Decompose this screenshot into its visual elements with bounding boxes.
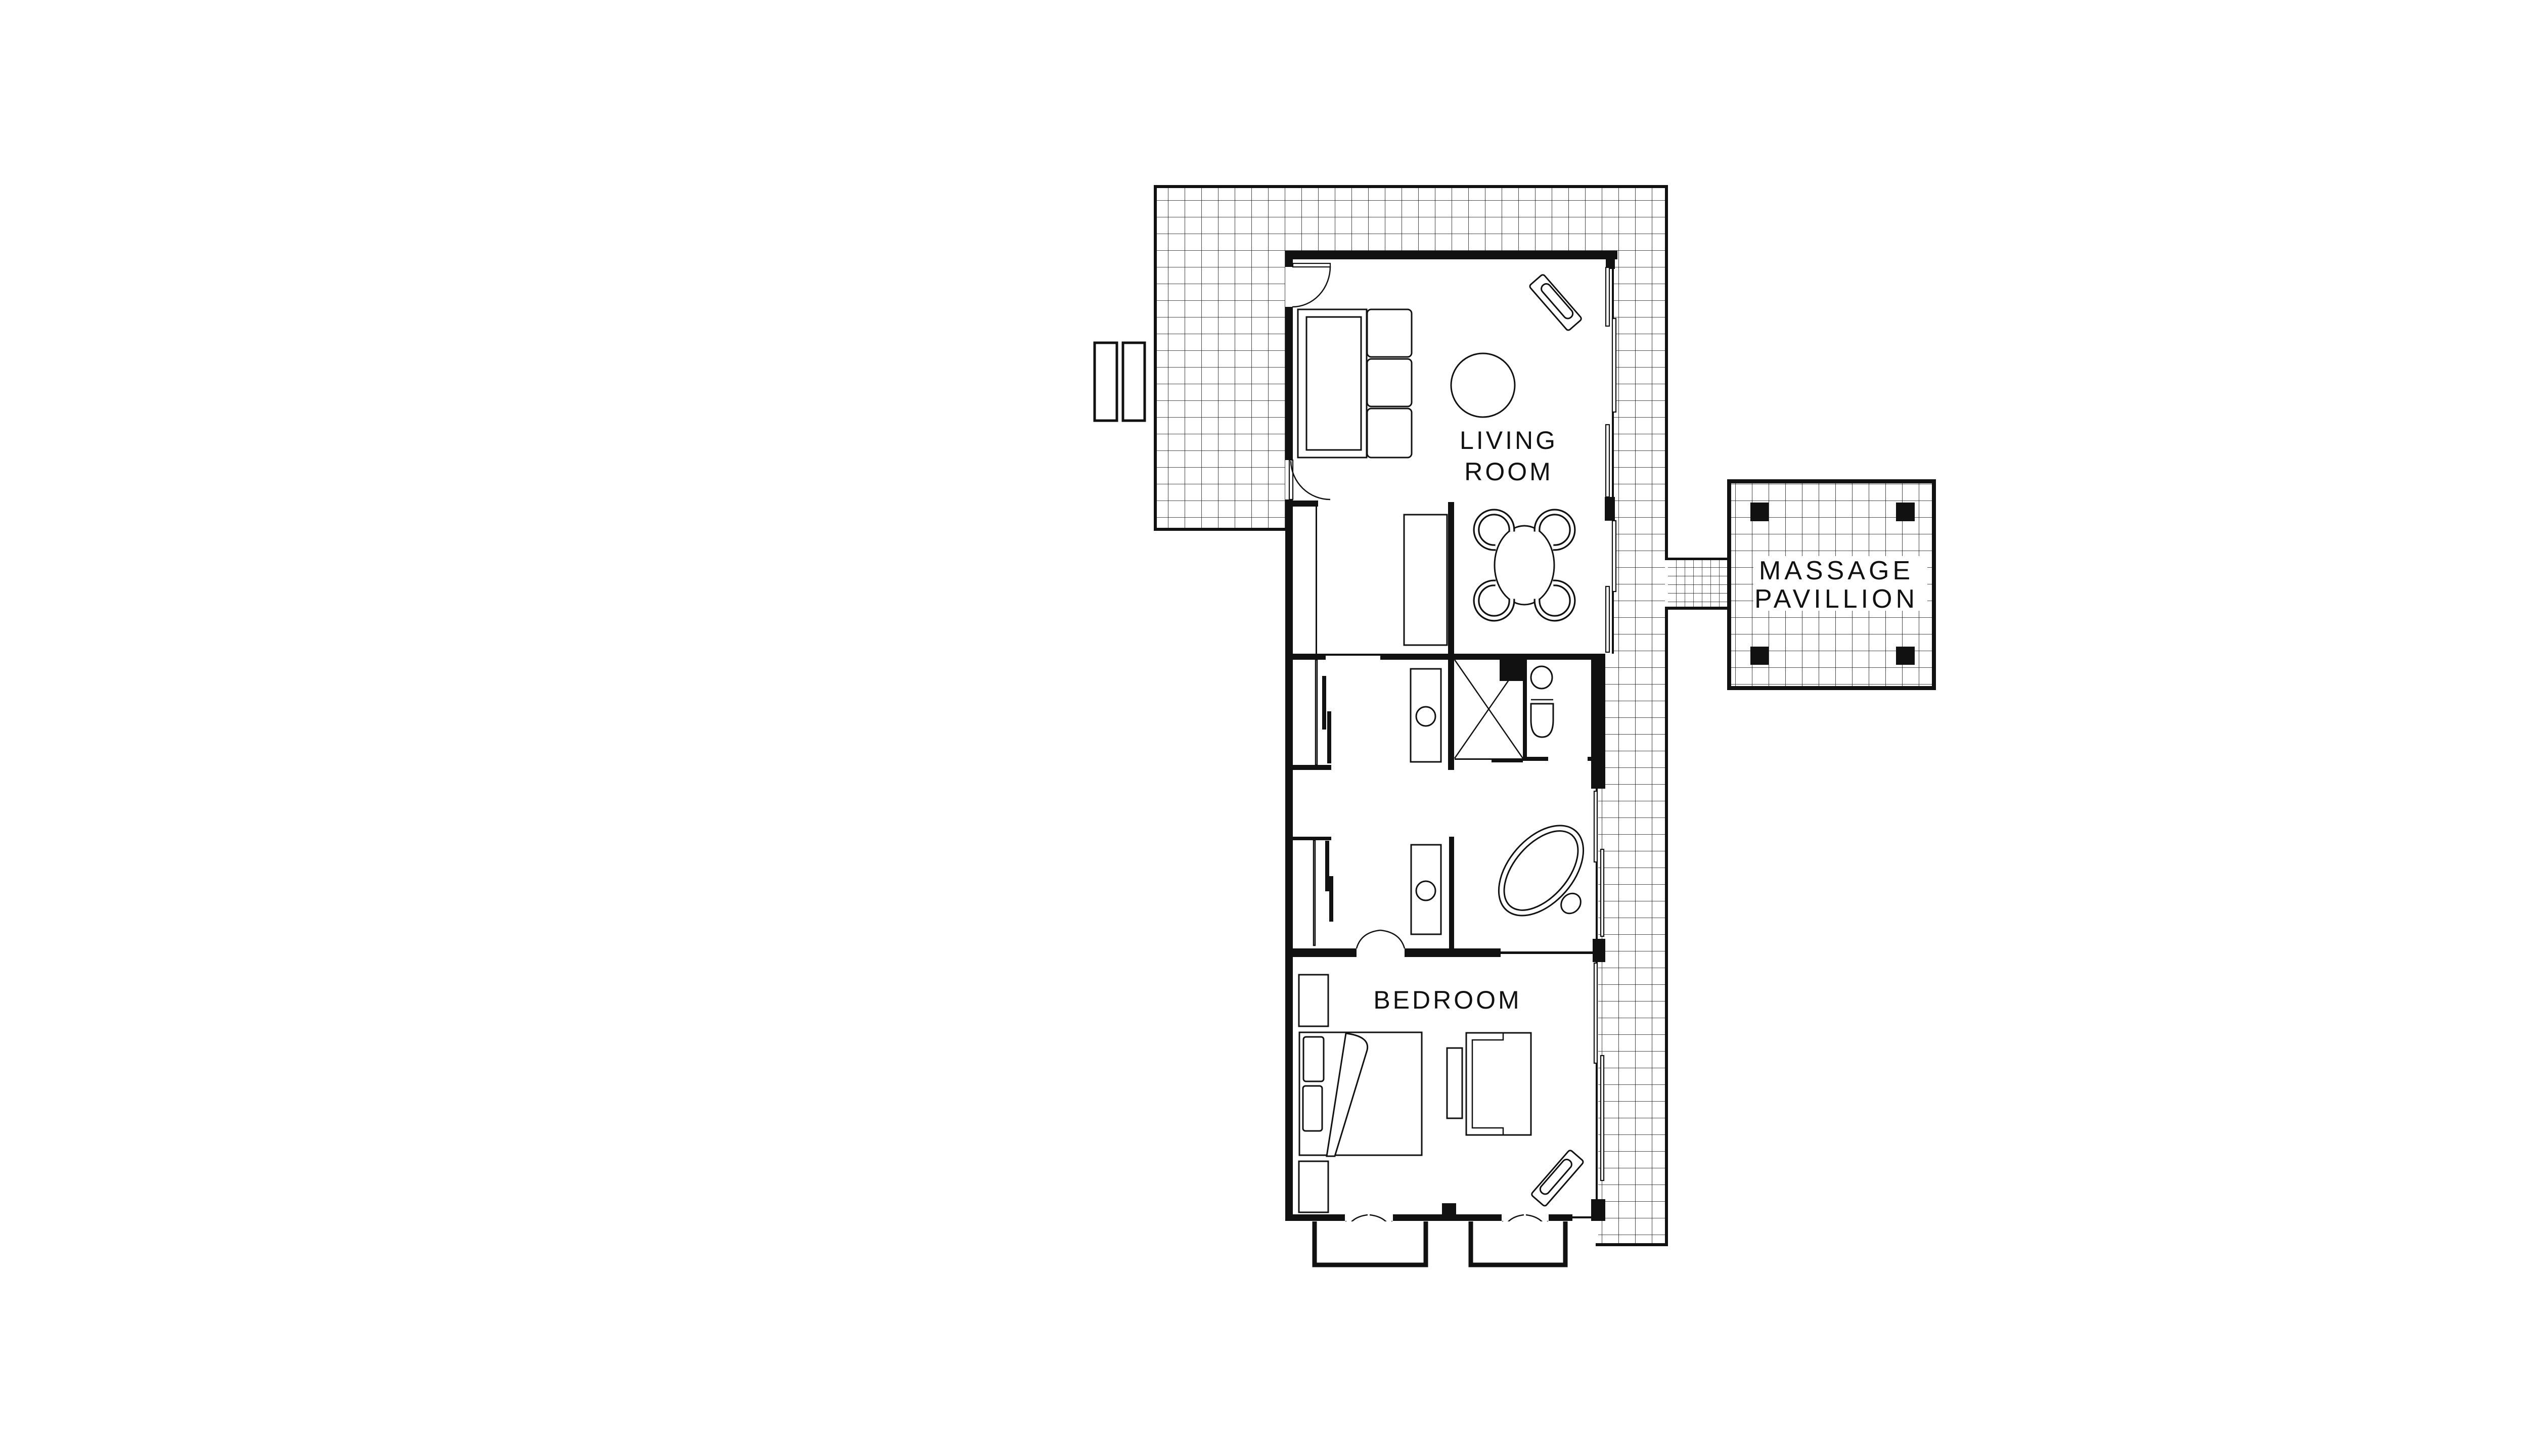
- wall-bath-bedroom-thin: [1501, 951, 1595, 954]
- wall-bath-bedroom: [1405, 948, 1501, 957]
- door-leaf: [1293, 263, 1330, 267]
- wall-vanity-right: [1449, 837, 1454, 952]
- wall-shower-bottom: [1492, 758, 1523, 762]
- porch-right: [1471, 1221, 1565, 1265]
- console-table: [1404, 515, 1447, 645]
- porch-left: [1315, 1221, 1426, 1265]
- walkway-hatch: [1668, 560, 1729, 607]
- wardrobe-slider: [1325, 841, 1329, 891]
- pillow: [1303, 1037, 1324, 1081]
- sofa-back-inner: [1306, 317, 1361, 450]
- floor-plan-stage: MASSAGE PAVILLION: [0, 0, 2528, 1456]
- deck-east-strip-lower: [1598, 654, 1665, 1243]
- window-pane: [1606, 586, 1609, 652]
- opening-header: [1326, 654, 1380, 656]
- walkway-border-bottom: [1665, 607, 1729, 610]
- wall-south-thin: [1572, 1216, 1593, 1218]
- deck-border-wing-bottom: [1154, 528, 1285, 531]
- pillow: [1303, 1086, 1322, 1131]
- floor-plan-svg: MASSAGE PAVILLION: [0, 0, 2528, 1456]
- wall-mullion: [1605, 497, 1615, 521]
- dresser: [1466, 1033, 1531, 1135]
- deck-border-bottom: [1596, 1243, 1668, 1246]
- sofa-cushion: [1367, 359, 1412, 406]
- deck-east-strip-upper: [1614, 188, 1665, 654]
- column: [1750, 503, 1769, 521]
- window-pane: [1606, 425, 1609, 497]
- bedroom-label: BEDROOM: [1373, 986, 1521, 1014]
- column: [1896, 647, 1915, 665]
- wall-south: [1285, 1214, 1345, 1221]
- nightstand: [1299, 975, 1328, 1026]
- dining-table: [1495, 526, 1554, 605]
- wall-pier: [1593, 939, 1605, 962]
- wall-toilet-left: [1523, 654, 1527, 761]
- wall-closet-top: [1285, 837, 1331, 840]
- window-pane: [1601, 849, 1604, 936]
- entry-step: [1123, 343, 1145, 421]
- column: [1896, 503, 1915, 521]
- wall-pier: [1442, 1203, 1456, 1221]
- massage-pavillion-label-line2: PAVILLION: [1754, 584, 1918, 614]
- window-pane: [1601, 1056, 1604, 1180]
- sofa-cushion: [1367, 309, 1412, 357]
- toilet-cistern: [1531, 666, 1552, 689]
- deck-border-top: [1154, 185, 1668, 188]
- wall-corner: [1591, 1199, 1605, 1221]
- wall-spine: [1448, 502, 1454, 770]
- toilet-bowl: [1531, 704, 1553, 737]
- round-rug: [1451, 353, 1515, 417]
- wall-bath-bedroom: [1285, 948, 1357, 957]
- wall-partition: [1527, 654, 1596, 660]
- sink: [1416, 707, 1435, 726]
- deck-top-strip: [1285, 188, 1614, 251]
- massage-pavillion-label-line1: MASSAGE: [1759, 556, 1914, 585]
- wall-north: [1285, 251, 1617, 259]
- wall-hall-screen: [1316, 507, 1317, 654]
- shower-column: [1500, 660, 1523, 681]
- wall-south: [1549, 1214, 1572, 1221]
- wardrobe-slider: [1322, 676, 1326, 730]
- wall-toilet-bottom: [1527, 757, 1548, 761]
- window-pane: [1612, 521, 1616, 591]
- deck-border-right-upper: [1665, 185, 1668, 558]
- wardrobe-slider: [1327, 711, 1331, 763]
- wall-west: [1285, 307, 1293, 460]
- nightstand: [1299, 1161, 1328, 1212]
- bench: [1447, 1048, 1462, 1118]
- deck-left-wing: [1157, 188, 1285, 528]
- wall-east-bath: [1591, 654, 1605, 789]
- window-pane: [1606, 267, 1609, 326]
- window-pane: [1594, 791, 1597, 862]
- entry-step: [1095, 343, 1117, 421]
- wall-west: [1285, 251, 1293, 267]
- wall-closet-bottom: [1285, 765, 1331, 770]
- deck-border-left: [1154, 185, 1157, 531]
- wall-west: [1285, 499, 1293, 1221]
- wall-hall-stub: [1285, 500, 1318, 507]
- window-pane: [1612, 318, 1616, 412]
- wall-partition: [1285, 654, 1326, 660]
- deck-border-right-lower: [1665, 610, 1668, 1243]
- massage-pavillion: MASSAGE PAVILLION: [1729, 481, 1934, 688]
- wardrobe-slider: [1329, 876, 1333, 922]
- sofa-cushion: [1367, 408, 1412, 458]
- living-room-label-line2: ROOM: [1464, 458, 1553, 486]
- walkway-border-top: [1665, 558, 1729, 560]
- walkway: [1665, 558, 1729, 610]
- window-pane: [1594, 963, 1597, 1063]
- column: [1750, 647, 1769, 665]
- living-room-label-line1: LIVING: [1460, 426, 1558, 454]
- sink: [1416, 881, 1435, 900]
